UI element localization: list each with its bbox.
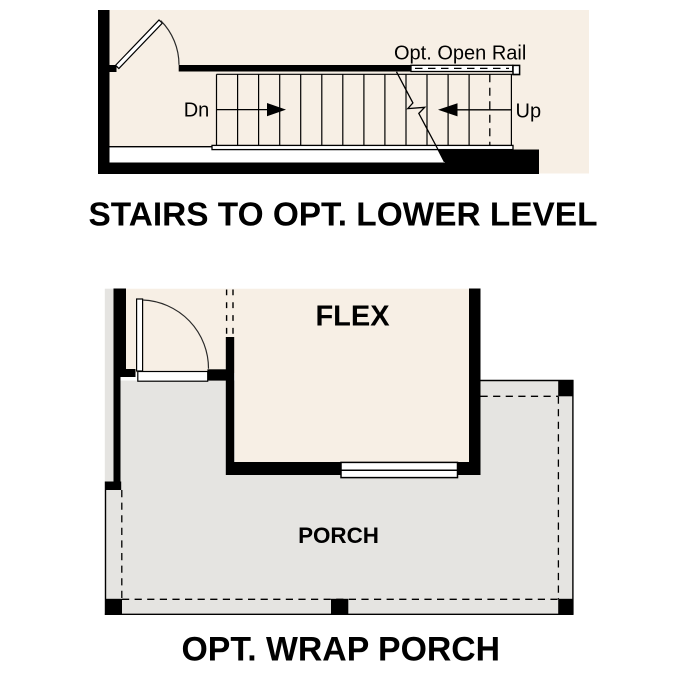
svg-text:Up: Up	[516, 101, 542, 123]
svg-text:OPT. WRAP PORCH: OPT. WRAP PORCH	[181, 630, 500, 668]
svg-text:Opt. Open Rail: Opt. Open Rail	[394, 43, 526, 65]
svg-text:FLEX: FLEX	[315, 301, 390, 333]
svg-text:Dn: Dn	[184, 100, 210, 122]
svg-text:PORCH: PORCH	[298, 523, 379, 548]
svg-text:STAIRS TO OPT. LOWER LEVEL: STAIRS TO OPT. LOWER LEVEL	[89, 197, 598, 234]
